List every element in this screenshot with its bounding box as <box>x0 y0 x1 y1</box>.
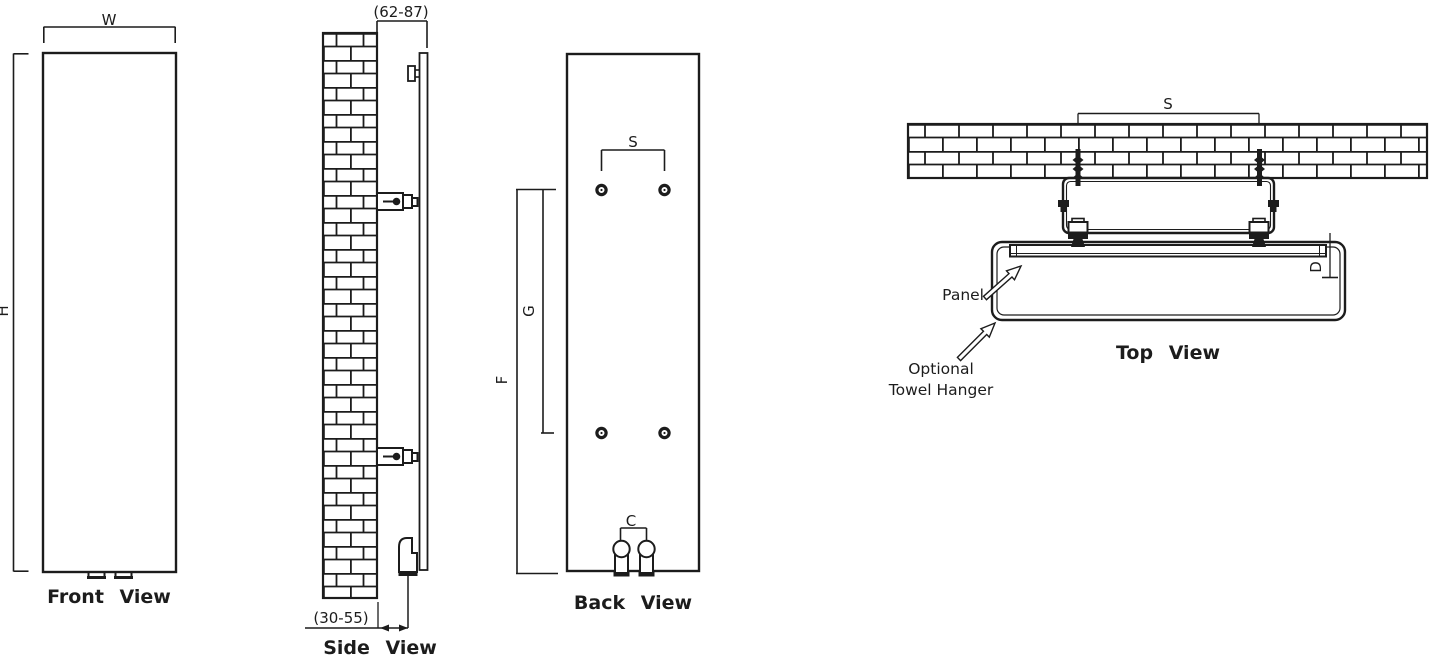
back-view <box>516 54 699 577</box>
front-view <box>14 27 177 578</box>
side-wall-bracket-lower <box>377 448 418 465</box>
side-view <box>305 21 428 632</box>
side-top-dimension <box>377 21 427 48</box>
top-view-title: Top View <box>1116 342 1220 364</box>
side-pipe-elbow <box>399 538 418 628</box>
top-depth-label: D <box>1307 261 1325 273</box>
back-view-title: Back View <box>574 592 692 614</box>
towel-hanger-callout-arrow <box>957 323 995 361</box>
arrowhead-left <box>380 625 389 632</box>
back-bracket-bottom-label: F <box>493 376 511 385</box>
back-bracket-span-label: S <box>628 133 638 151</box>
rail-side-screw-right <box>1271 206 1277 212</box>
top-bracket-span-label: S <box>1163 95 1173 113</box>
side-bottom-dimension-label: (30-55) <box>313 609 368 627</box>
rail-side-screw-left <box>1058 200 1069 207</box>
arrowhead-right <box>399 625 408 632</box>
towel-hanger-callout-line1: Optional <box>908 360 974 378</box>
back-panel-outline <box>567 54 699 571</box>
rail-side-screw-left <box>1061 206 1067 212</box>
side-top-dimension-label: (62-87) <box>373 3 428 21</box>
front-height-dimension <box>14 54 29 572</box>
panel-callout-label: Panel <box>942 286 984 304</box>
front-panel-outline <box>43 53 176 572</box>
back-pipe-centres-label: C <box>626 512 636 530</box>
top-panel-bar <box>1010 245 1326 257</box>
top-wall <box>908 124 1427 178</box>
side-view-title: Side View <box>323 637 437 659</box>
bracket-bolt <box>393 453 401 461</box>
back-vertical-dimensions <box>516 190 558 574</box>
front-width-dimension <box>44 27 176 43</box>
side-top-clip <box>408 66 420 81</box>
front-height-label: H <box>0 305 12 316</box>
radiator-installation-drawing: W H Front View <box>0 0 1445 667</box>
back-bracket-spacing-label: G <box>520 305 538 317</box>
towel-hanger-callout-line2: Towel Hanger <box>888 381 994 399</box>
bracket-bolt <box>393 198 401 206</box>
front-view-title: Front View <box>47 586 171 608</box>
rail-side-screw-right <box>1268 200 1279 207</box>
top-view <box>908 114 1427 361</box>
side-wall <box>323 33 377 598</box>
front-width-label: W <box>102 11 117 29</box>
top-mounting-rail <box>1058 178 1279 233</box>
side-panel-edge <box>420 53 428 570</box>
drawing-canvas: W H Front View <box>0 0 1445 667</box>
side-wall-bracket-upper <box>377 193 418 210</box>
